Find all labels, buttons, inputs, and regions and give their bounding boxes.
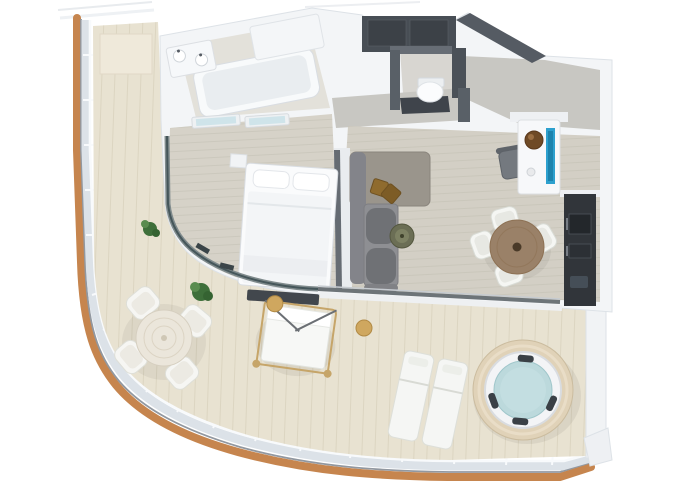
decor-object: [527, 168, 535, 176]
tv-screen-inner: [548, 131, 553, 181]
decor-bowl-highlight: [528, 134, 534, 140]
handle: [566, 218, 568, 230]
oven: [569, 214, 591, 234]
tub-water-highlight: [500, 367, 546, 413]
tub-headrest: [512, 417, 529, 425]
dining-table-center: [513, 243, 522, 252]
balcony-door-panel: [100, 34, 152, 74]
bed-pillow: [253, 169, 290, 188]
kitchen-counter: [560, 190, 600, 306]
floorplan-stage: [0, 0, 680, 486]
plant-foliage: [141, 220, 149, 228]
plant-foliage: [203, 291, 213, 301]
wardrobe-door: [410, 20, 448, 46]
bed-pillow: [293, 172, 330, 191]
gold-stool: [356, 320, 372, 336]
side-table-center: [400, 234, 404, 238]
wc-wall: [390, 50, 400, 110]
nightstand: [230, 154, 247, 168]
plant-foliage: [190, 282, 200, 292]
sink: [570, 276, 588, 288]
cabinet-module: [569, 244, 591, 258]
plant-foliage: [152, 229, 160, 237]
entry-wall-stub: [458, 88, 470, 122]
decor-bowl: [525, 131, 543, 149]
floorplan-render: [0, 0, 680, 486]
terrace-table-center: [161, 335, 167, 341]
side-table: [390, 224, 414, 248]
handle: [566, 246, 568, 256]
sofa-cushion: [366, 248, 396, 284]
wardrobe-door: [368, 20, 406, 46]
bedroom-partition: [334, 148, 352, 290]
toilet: [417, 82, 443, 102]
tub-headrest: [517, 354, 534, 362]
